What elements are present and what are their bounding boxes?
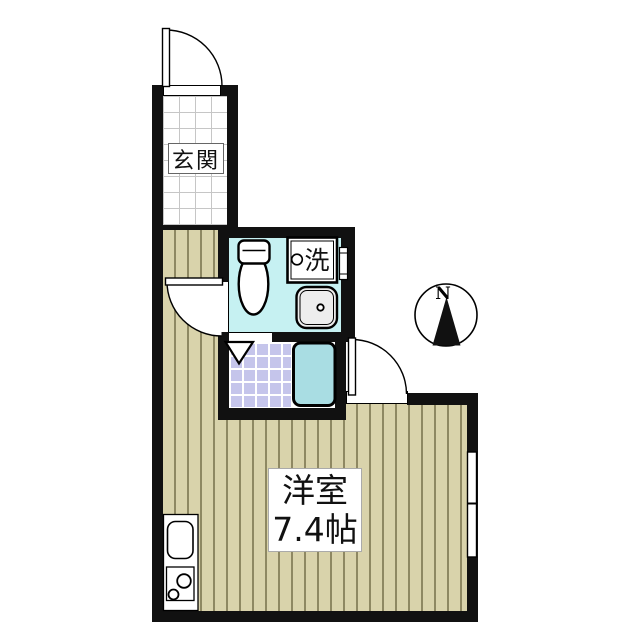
entrance-door-sill (163, 85, 221, 96)
toilet-doorway (218, 282, 229, 332)
wall-shower-bottom (218, 408, 346, 420)
north-needle-icon (433, 297, 461, 346)
main-room-name: 洋室 (282, 471, 348, 510)
compass-north-label: N (435, 284, 451, 304)
entrance-door-icon (163, 29, 223, 87)
main-room-size: 7.4帖 (272, 510, 357, 549)
wall-right-outer (467, 393, 478, 622)
wall-entrance-right (227, 85, 238, 238)
wall-bottom-outer (152, 611, 478, 622)
shower-tile-floor (229, 342, 291, 408)
main-room-door-sill (346, 391, 408, 404)
entrance-label: 玄関 (168, 143, 224, 174)
main-room-door-icon (349, 338, 407, 395)
wall-washroom-right (341, 227, 355, 332)
main-room-label: 洋室 7.4帖 (268, 468, 362, 552)
bathtub-area-floor (291, 342, 335, 408)
main-room-floor-upper-strip (346, 404, 467, 420)
entrance-step-edge (163, 225, 227, 230)
wall-washroom-top (218, 227, 355, 238)
wall-left-outer (152, 85, 163, 622)
hallway-floor (163, 230, 218, 611)
wall-toilet-left (218, 238, 229, 282)
washroom-floor (229, 238, 341, 332)
shower-doorway (229, 332, 272, 342)
compass: N (415, 284, 477, 346)
wall-shower-right (335, 342, 346, 408)
floorplan: 洗 (0, 0, 640, 640)
